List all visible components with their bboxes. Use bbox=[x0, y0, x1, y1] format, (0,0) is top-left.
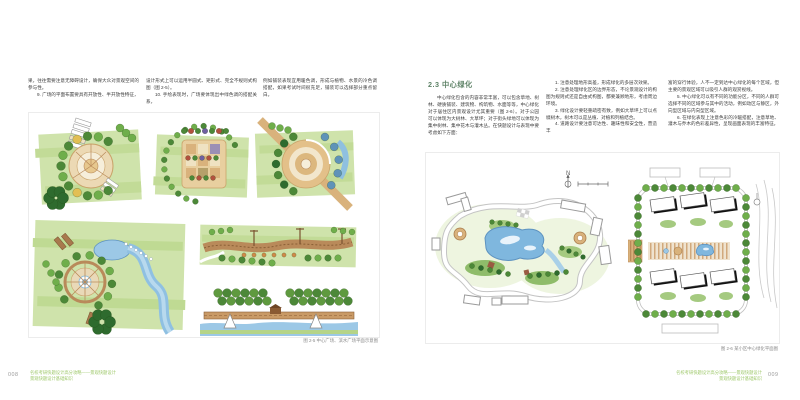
section-heading: 2.3 中心绿化 bbox=[428, 80, 473, 90]
paragraph: 9. 广场的平面布置要具有开放性、半开放性特征， bbox=[28, 92, 139, 99]
paragraph: 果，往往需要注意无障碍设计，确保大众对景观空间的参与性。 bbox=[28, 78, 139, 92]
paragraph: 中心绿化包含的内容非常丰富，可以包含草地、树林、硬质铺装、建筑物、构筑物、水面等… bbox=[428, 95, 539, 136]
figure-plaza-circular bbox=[34, 116, 146, 216]
chapter-title: 景观快题设计基础知识 bbox=[30, 376, 116, 382]
paragraph: 3. 绿化设计要轻重疏密有致，例如大草坪上可以点缀树木，树木可以是丛植、对植和列… bbox=[546, 108, 657, 122]
label-box bbox=[700, 168, 730, 177]
paragraph: 设计形式上可以运用半圆式、矩形式、完全不规则式构图（图 2-5）。 bbox=[146, 78, 257, 92]
running-footer: 名校考研快题设计高分攻略——景观快题设计 景观快题设计基础知识 bbox=[30, 370, 116, 382]
page-left: 果，往往需要注意无障碍设计，确保大众对景观空间的参与性。 9. 广场的平面布置要… bbox=[0, 0, 400, 400]
paragraph: 4. 道路设计要注意可达性、趣味性和安全性，营造丰 bbox=[546, 121, 657, 135]
right-text-column-1: 中心绿化包含的内容非常丰富，可以包含草地、树林、硬质铺装、建筑物、构筑物、水面等… bbox=[428, 95, 539, 136]
label-box bbox=[650, 168, 680, 177]
page-number: 009 bbox=[768, 372, 779, 378]
running-footer: 名校考研快题设计高分攻略——景观快题设计 景观快题设计基础知识 bbox=[676, 370, 762, 382]
figure-central-green-plan bbox=[430, 186, 623, 308]
chapter-title: 景观快题设计基础知识 bbox=[676, 376, 762, 382]
paragraph: 2. 注意处理绿化区的边界形态，不论景观设计的构图为规则式还是自由式构图，都要兼… bbox=[546, 87, 657, 108]
paragraph: 例如铺装表现宜用暖色调，形成与植物、水景的冷色调搭配，如果考试时间很充足，铺装可… bbox=[263, 78, 377, 99]
figF-trees bbox=[214, 289, 353, 306]
book-spread: 果，往往需要注意无障碍设计，确保大众对景观空间的参与性。 9. 广场的平面布置要… bbox=[0, 0, 800, 400]
page-number: 008 bbox=[8, 372, 19, 378]
figure-boardwalk-plan bbox=[198, 218, 358, 273]
right-text-column-2: 1. 注意处理地形高差，形成绿化的多层次效果。 2. 注意处理绿化区的边界形态，… bbox=[546, 80, 657, 135]
figure-plaza-waterfront bbox=[30, 214, 188, 336]
figH-buildings bbox=[650, 192, 738, 289]
paragraph: 5. 中心绿化可以有不同的功能分区，不同的人群可选择不同的区域参与其中的活动，例… bbox=[668, 94, 779, 115]
figure-residential-plan bbox=[628, 166, 778, 338]
figH-contours bbox=[756, 180, 777, 308]
figure-caption: 图 2-5 中心广场、滨水广场平面示意图 bbox=[303, 338, 378, 344]
figure-caption: 图 2-6 某小区中心绿化平面图 bbox=[721, 346, 778, 352]
figure-plaza-spiral bbox=[254, 116, 356, 212]
left-text-column-2: 设计形式上可以运用半圆式、矩形式、完全不规则式构图（图 2-5）。 10. 手绘… bbox=[146, 78, 257, 106]
label-box bbox=[662, 324, 718, 333]
paragraph: 富的穿行体验，人不一定到达中心绿化的每个区域，但主要的景观区域可以吸引人群的观赏… bbox=[668, 80, 779, 94]
page-right: 2.3 中心绿化 中心绿化包含的内容非常丰富，可以包含草地、树林、硬质铺装、建筑… bbox=[400, 0, 800, 400]
left-text-column-1: 果，往往需要注意无障碍设计，确保大众对景观空间的参与性。 9. 广场的平面布置要… bbox=[28, 78, 139, 99]
paragraph: 1. 注意处理地形高差，形成绿化的多层次效果。 bbox=[546, 80, 657, 87]
paragraph: 6. 在绿化表现上注意色彩的冷暖搭配，注意草地、灌木与乔木的色彩差异性，呈现画面… bbox=[668, 115, 779, 129]
paragraph: 10. 手绘表现时，广场要体现出中绿色调的搭配关系， bbox=[146, 92, 257, 106]
figure-promenade-section bbox=[198, 282, 360, 336]
right-text-column-3: 富的穿行体验，人不一定到达中心绿化的每个区域，但主要的景观区域可以吸引人群的观赏… bbox=[668, 80, 779, 128]
figure-plaza-grid bbox=[152, 118, 252, 213]
left-text-column-3: 例如铺装表现宜用暖色调，形成与植物、水景的冷色调搭配，如果考试时间很充足，铺装可… bbox=[263, 78, 377, 99]
